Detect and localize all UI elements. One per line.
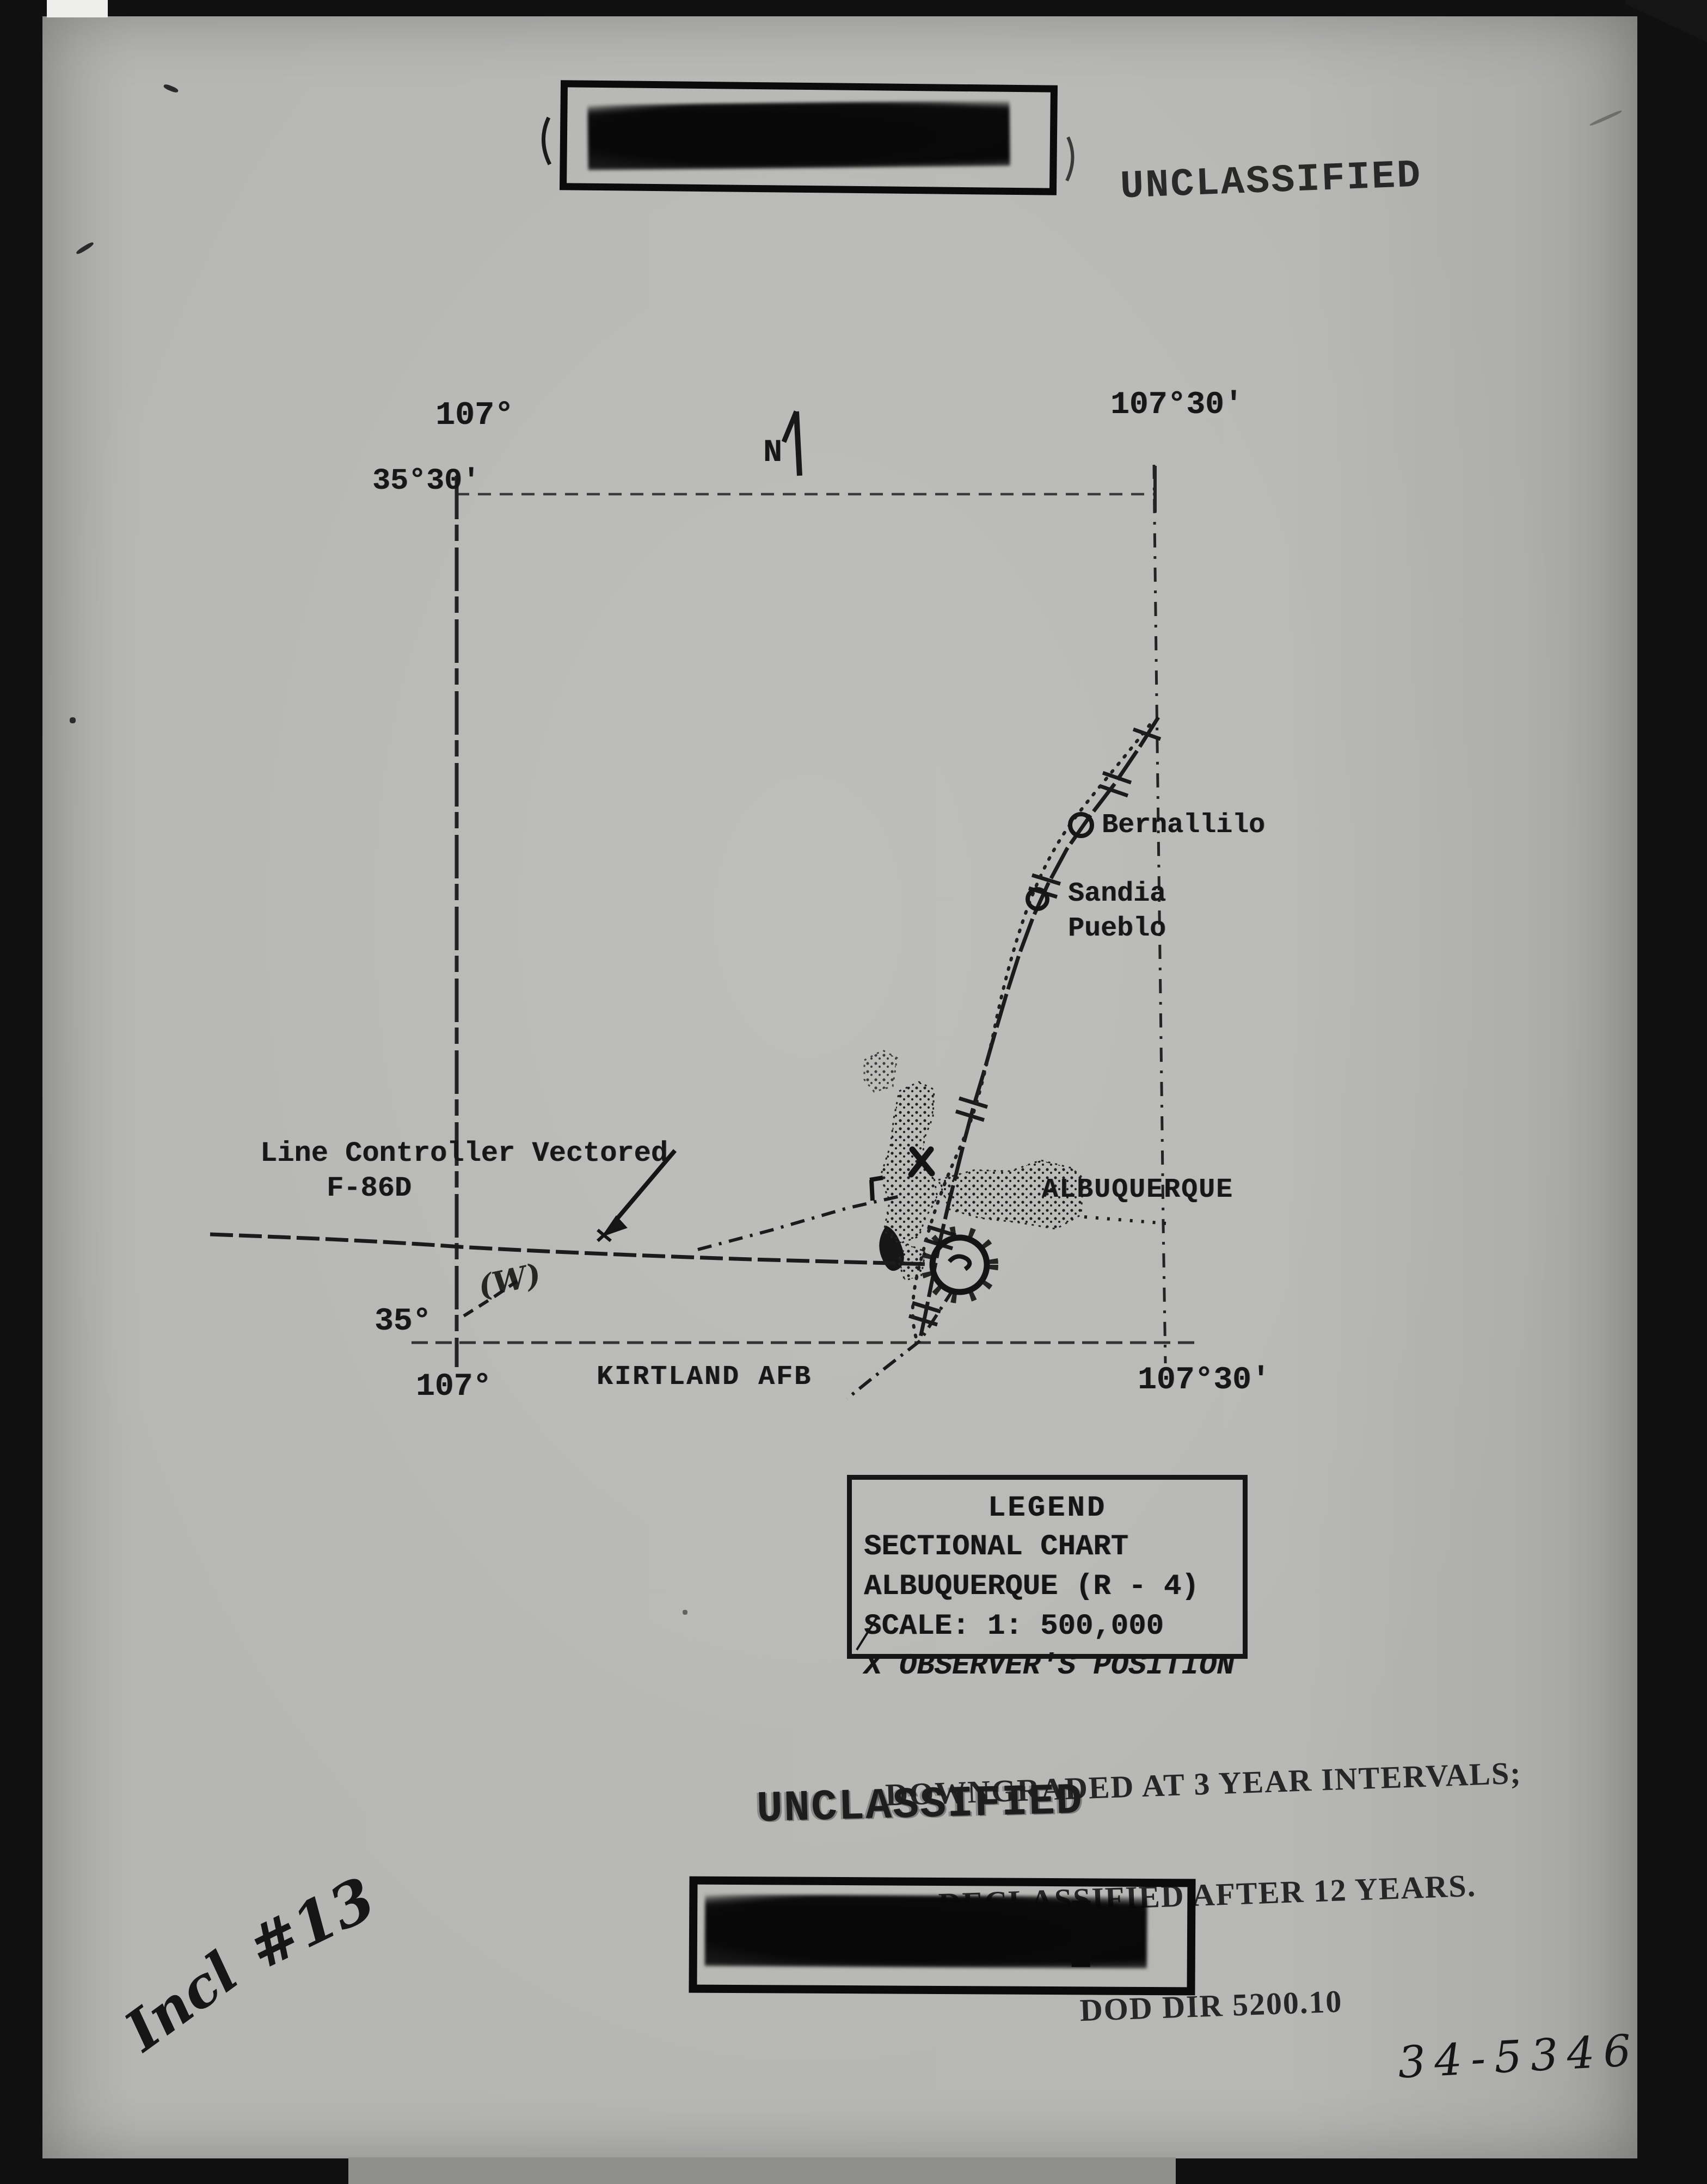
legend-line-scale: SCALE: 1: 500,000 xyxy=(864,1610,1243,1643)
unclassified-stamp-bottom: UNCLASSIFIED xyxy=(756,1776,1084,1835)
scanned-document-page: UNCLASSIFIED xyxy=(0,0,1707,2184)
coord-label-bottom-left-lat: 35° xyxy=(374,1304,431,1339)
callout-label-line1: Line Controller Vectored xyxy=(260,1137,668,1170)
north-arrow-icon xyxy=(784,411,800,476)
coord-label-bottom-right-lon: 107°30' xyxy=(1138,1363,1270,1398)
place-label-sandia: Sandia xyxy=(1068,878,1166,909)
city-to-border-dotted-line xyxy=(1084,1217,1166,1223)
legend-line-chart: SECTIONAL CHART xyxy=(864,1530,1243,1564)
place-label-pueblo: Pueblo xyxy=(1068,913,1166,944)
place-label-kirtland-afb: KIRTLAND AFB xyxy=(597,1362,812,1393)
coord-label-top-right-lon: 107°30' xyxy=(1110,387,1243,423)
stray-paren-marks xyxy=(543,118,1072,181)
bernalillo-marker xyxy=(1070,814,1092,836)
legend-line-observer: X OBSERVER'S POSITION xyxy=(864,1650,1243,1683)
redaction-letter-remnant xyxy=(1072,1900,1091,1967)
place-label-bernalillo: Bernallilo xyxy=(1102,810,1265,841)
callout-label-line2: F-86D xyxy=(327,1172,412,1204)
track-branch-line xyxy=(698,1196,902,1250)
legend-box: LEGEND SECTIONAL CHART ALBUQUERQUE (R - … xyxy=(847,1475,1248,1659)
legend-title: LEGEND xyxy=(852,1492,1243,1525)
legend-line-sheet: ALBUQUERQUE (R - 4) xyxy=(864,1570,1243,1603)
north-label: N xyxy=(763,435,782,471)
redacted-classification-box-bottom xyxy=(689,1877,1195,1996)
coord-label-bottom-left-lon: 107° xyxy=(416,1369,492,1405)
coord-label-top-left-lon: 107° xyxy=(435,397,514,434)
coord-label-top-left-lat: 35°30' xyxy=(372,464,480,498)
place-label-albuquerque: ALBUQUERQUE xyxy=(1042,1174,1233,1205)
